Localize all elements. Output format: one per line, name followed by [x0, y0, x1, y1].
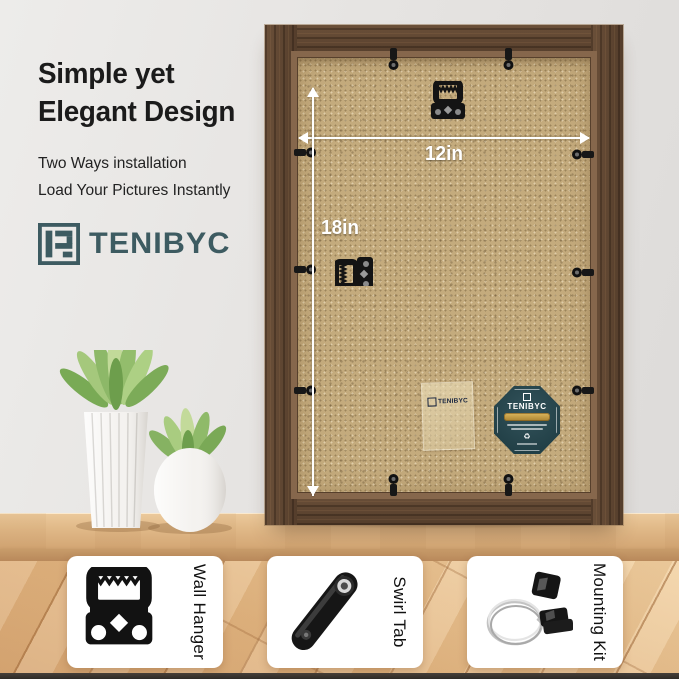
swirl-tab-icon	[502, 472, 515, 496]
swirl-tab-large-icon	[281, 567, 367, 657]
height-dimension-line	[312, 88, 314, 496]
picture-frame-back: 12in 18in TENIBYC TENIBYC ♻	[265, 25, 623, 525]
brand-logo: TENIBYC	[38, 223, 228, 265]
subtext: Two Ways installation Load Your Pictures…	[38, 150, 230, 204]
swirl-tab-icon	[570, 384, 594, 397]
height-label: 18in	[321, 217, 359, 240]
headline-line2: Elegant Design	[38, 93, 235, 131]
brand-sticker: TENIBYC	[421, 381, 475, 451]
feature-label: Wall Hanger	[189, 554, 209, 670]
swirl-tab-icon	[294, 146, 318, 159]
swirl-tab-icon	[294, 384, 318, 397]
swirl-tab-icon	[502, 48, 515, 72]
arrow-right-icon	[580, 132, 590, 144]
recycle-icon: ♻	[523, 432, 530, 441]
feature-card-swirl-tab: Swirl Tab	[267, 556, 423, 668]
arrow-down-icon	[307, 486, 319, 496]
wall-hanger-icon	[81, 567, 157, 653]
plant-leaves-tall	[55, 350, 173, 413]
headline-line1: Simple yet	[38, 55, 235, 93]
badge-fine-print-line	[517, 443, 537, 445]
feature-label: Swirl Tab	[389, 554, 409, 670]
swirl-tab-icon	[387, 48, 400, 72]
brand-wordmark: TENIBYC	[89, 227, 230, 261]
product-image: Simple yet Elegant Design Two Ways insta…	[0, 0, 679, 679]
swirl-tab-icon	[570, 266, 594, 279]
width-dimension-line	[299, 137, 589, 139]
bottom-dark-band	[0, 673, 679, 679]
headline: Simple yet Elegant Design	[38, 55, 235, 131]
sticker-logo-icon	[427, 397, 436, 406]
swirl-tab-icon	[387, 472, 400, 496]
swirl-tab-icon	[294, 263, 318, 276]
swirl-tab-icon	[570, 148, 594, 161]
sticker-brand-text: TENIBYC	[438, 397, 468, 405]
subtext-line2: Load Your Pictures Instantly	[38, 177, 230, 204]
mounting-kit-icon	[481, 567, 573, 657]
arrow-left-icon	[298, 132, 308, 144]
subtext-line1: Two Ways installation	[38, 150, 230, 177]
feature-card-mounting-kit: Mounting Kit	[467, 556, 623, 668]
width-label: 12in	[416, 143, 473, 166]
badge-brand-text: TENIBYC	[507, 402, 546, 411]
feature-label: Mounting Kit	[589, 554, 609, 670]
badge-fine-print-line	[507, 424, 547, 426]
badge-fine-print-line	[511, 428, 543, 430]
sawtooth-hanger-icon	[431, 81, 465, 125]
arrow-up-icon	[307, 87, 319, 97]
feature-card-wall-hanger: Wall Hanger	[67, 556, 223, 668]
succulent-plants	[40, 350, 240, 535]
sawtooth-hanger-side-icon	[335, 252, 379, 286]
brand-logo-icon	[38, 223, 80, 265]
badge-logo-icon	[523, 393, 531, 401]
brand-badge: TENIBYC ♻	[494, 386, 560, 454]
badge-gold-banner	[504, 413, 550, 421]
